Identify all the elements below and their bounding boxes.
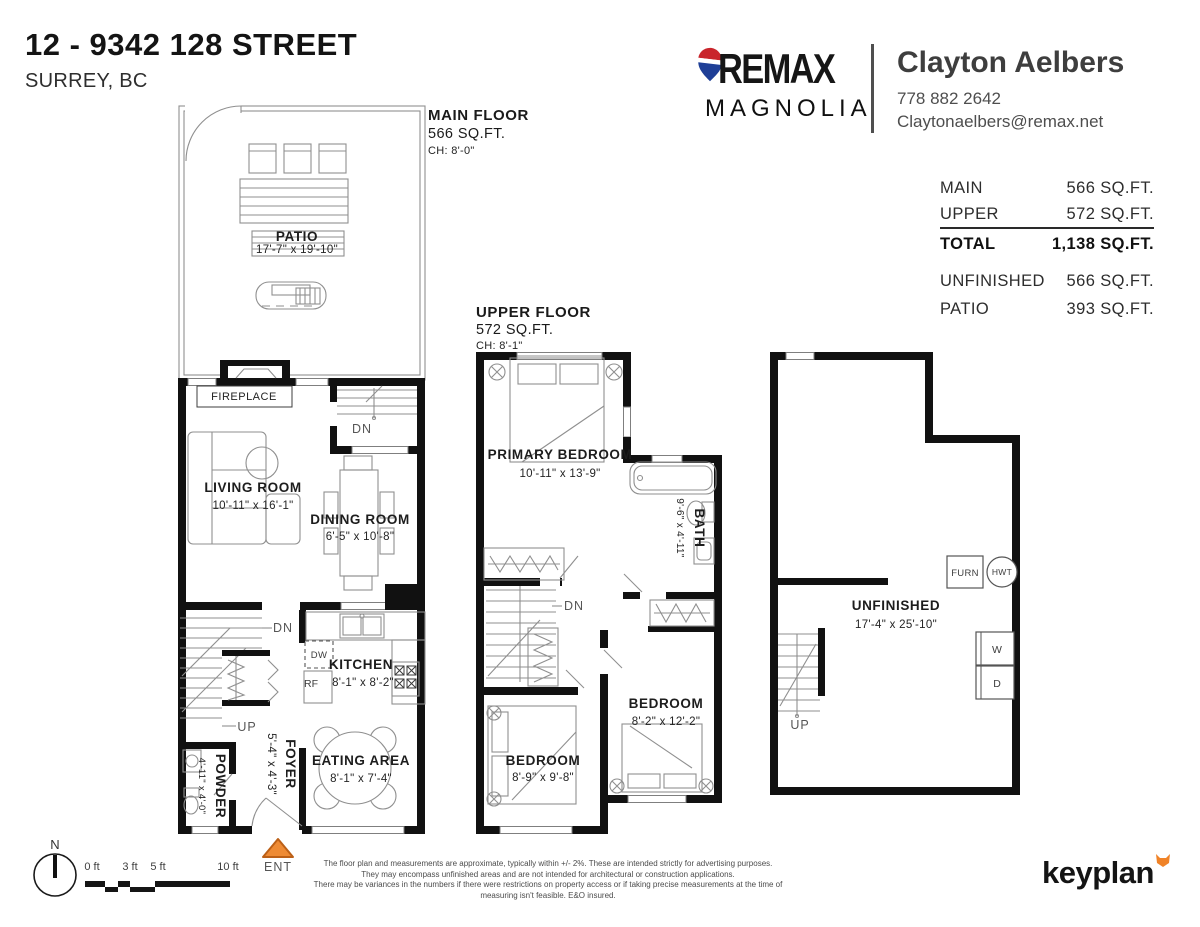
fireplace-label: FIREPLACE — [211, 391, 277, 403]
disclaimer-line: The floor plan and measurements are appr… — [308, 859, 788, 870]
disclaimer-line: They may encompass unfinished areas and … — [308, 870, 788, 881]
unfinished-label: UNFINISHED — [852, 598, 941, 613]
disclaimer-line: There may be variances in the numbers if… — [308, 880, 788, 901]
bath-label: BATH — [692, 509, 707, 548]
eating-area-label: EATING AREA — [312, 753, 410, 768]
bedroom-left-dims: 8'-9" x 9'-8" — [512, 772, 574, 784]
north-compass: N — [34, 837, 76, 896]
down-marker: DN — [273, 621, 293, 635]
upper-hall-closet-icon — [528, 628, 558, 686]
patio-furniture — [240, 144, 348, 309]
living-room-label: LIVING ROOM — [204, 480, 301, 495]
bedroom-left-label: BEDROOM — [506, 753, 581, 768]
bedroom-closet-icon — [650, 600, 714, 626]
floorplan-flyer-page: { "header": { "address_line1": "12 - 934… — [0, 0, 1200, 927]
living-room-dims: 10'-11" x 16'-1" — [212, 500, 293, 512]
scale-label: 0 ft — [84, 861, 99, 873]
scale-label: 5 ft — [150, 861, 165, 873]
scale-bar: 0 ft 3 ft 5 ft 10 ft — [84, 861, 238, 892]
up-marker: UP — [237, 720, 256, 734]
bbq-grill-icon — [256, 282, 326, 309]
foyer-label: FOYER — [283, 739, 298, 789]
down-marker: DN — [564, 599, 584, 613]
hall-closet-icon — [222, 650, 278, 706]
down-marker: DN — [352, 422, 372, 436]
upper-stairs-down — [486, 586, 562, 682]
entry-arrow-icon — [263, 839, 293, 857]
up-marker: UP — [790, 718, 809, 732]
washer-label: W — [992, 644, 1002, 656]
entry-label: ENT — [264, 860, 292, 874]
floor-plan-canvas: MAIN FLOOR 566 SQ.FT. CH: 8'-0" PATIO 17… — [0, 0, 1200, 927]
kitchen-sink-icon — [340, 614, 384, 638]
dryer-label: D — [993, 678, 1001, 690]
dining-room-dims: 6'-5" x 10'-8" — [326, 531, 395, 543]
bedroom-right-dims: 8'-2" x 12'-2" — [632, 716, 701, 728]
keyplan-wordmark: keyplan — [1042, 855, 1154, 891]
stove-icon — [392, 662, 419, 696]
main-floor-area: 566 SQ.FT. — [428, 126, 505, 142]
powder-label: POWDER — [213, 754, 228, 818]
primary-closet-icon — [484, 548, 564, 580]
north-label: N — [50, 837, 59, 852]
bath-dims: 9'-6" x 4'-11" — [674, 498, 685, 558]
upper-floor-ceiling: CH: 8'-1" — [476, 340, 523, 352]
scale-bar-blocks — [85, 881, 230, 892]
keyplan-logo: keyplan — [1042, 855, 1171, 891]
main-stairs-down — [330, 386, 425, 454]
eating-area-dims: 8'-1" x 7'-4" — [330, 773, 392, 785]
bedroom-right-label: BEDROOM — [629, 696, 704, 711]
primary-bedroom-dims: 10'-11" x 13'-9" — [519, 468, 600, 480]
upper-floor-title: UPPER FLOOR — [476, 304, 591, 321]
entry-door — [252, 798, 302, 826]
kitchen-dims: 8'-1" x 8'-2" — [332, 677, 394, 689]
keyplan-fox-icon — [1155, 853, 1171, 868]
powder-dims: 4'-11" x 4'-0" — [196, 758, 207, 815]
refrigerator-label: RF — [304, 678, 318, 690]
scale-label: 3 ft — [122, 861, 137, 873]
round-rug-icon — [246, 447, 278, 479]
upper-floor-area: 572 SQ.FT. — [476, 322, 553, 338]
hot-water-tank-label: HWT — [992, 567, 1012, 577]
unfinished-stairs-up — [778, 628, 825, 718]
disclaimer-text: The floor plan and measurements are appr… — [308, 859, 788, 901]
upper-floor-plan: UPPER FLOOR 572 SQ.FT. CH: 8'-1" PRIMARY… — [476, 304, 722, 834]
unfinished-dims: 17'-4" x 25'-10" — [855, 619, 937, 631]
entry-marker: ENT — [263, 839, 293, 874]
bedroom-right-bed-icon — [610, 724, 713, 793]
patio-label: PATIO — [276, 229, 318, 244]
foyer-dims: 5'-4" x 4'-3" — [265, 733, 277, 795]
eating-table-icon — [314, 727, 396, 809]
kitchen-label: KITCHEN — [329, 657, 393, 672]
furnace-label: FURN — [951, 568, 979, 579]
unfinished-plan: UNFINISHED 17'-4" x 25'-10" FURN HWT W D… — [770, 352, 1020, 795]
dining-room-label: DINING ROOM — [310, 512, 410, 527]
scale-label: 10 ft — [217, 861, 238, 873]
main-stairs-up — [180, 618, 272, 726]
main-floor-title: MAIN FLOOR — [428, 107, 529, 124]
primary-bedroom-label: PRIMARY BEDROOM — [488, 447, 633, 462]
patio-dims: 17'-7" x 19'-10" — [256, 244, 338, 256]
dishwasher-label: DW — [311, 650, 327, 661]
main-floor-ceiling: CH: 8'-0" — [428, 145, 475, 157]
